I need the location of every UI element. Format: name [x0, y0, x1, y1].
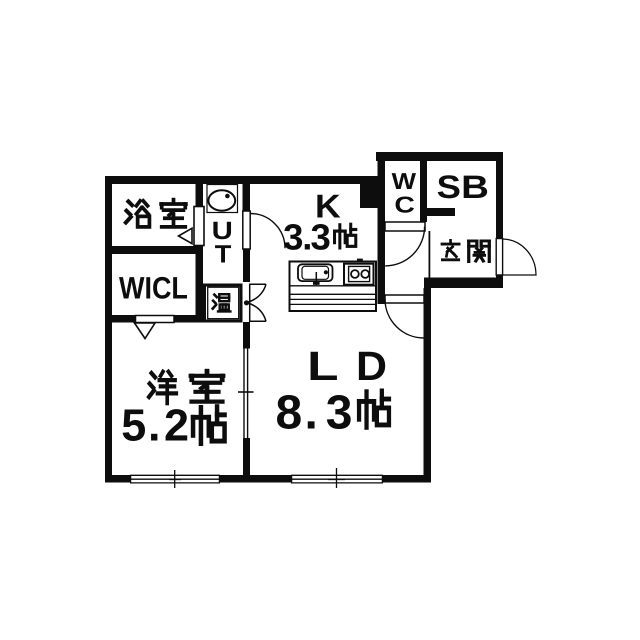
svg-text:T: T	[215, 240, 232, 268]
svg-text:WICL: WICL	[119, 271, 188, 306]
svg-text:D: D	[356, 343, 387, 389]
svg-text:S: S	[437, 169, 461, 205]
svg-text:3: 3	[326, 387, 353, 440]
svg-text:B: B	[461, 169, 489, 205]
svg-text:.: .	[148, 400, 161, 451]
svg-text:L: L	[307, 343, 338, 389]
svg-text:8: 8	[275, 387, 302, 440]
svg-text:.: .	[305, 387, 318, 440]
svg-text:3: 3	[311, 216, 331, 257]
svg-text:5: 5	[121, 400, 146, 451]
svg-text:3: 3	[283, 216, 303, 257]
svg-text:2: 2	[164, 400, 189, 451]
svg-text:C: C	[394, 192, 415, 218]
svg-text:W: W	[392, 168, 417, 194]
